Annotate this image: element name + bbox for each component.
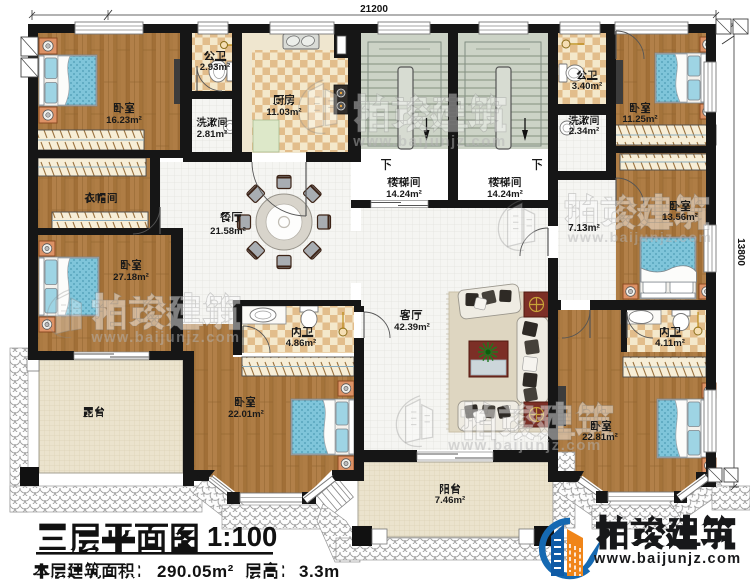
svg-text:www.baijunjz.com: www.baijunjz.com [447, 437, 601, 454]
svg-text:2.93m²: 2.93m² [200, 62, 230, 73]
svg-text:11.25m²: 11.25m² [622, 114, 657, 125]
svg-text:4.86m²: 4.86m² [286, 338, 316, 349]
svg-text:3.40m²: 3.40m² [572, 81, 602, 92]
svg-text:7.13m²: 7.13m² [568, 223, 600, 234]
svg-text:www.baijunjz.com: www.baijunjz.com [90, 330, 240, 346]
svg-text:4.11m²: 4.11m² [655, 338, 685, 349]
svg-text:22.01m²: 22.01m² [228, 409, 264, 420]
svg-text:www.baijunjz.com: www.baijunjz.com [352, 133, 506, 150]
svg-text:2.81m²: 2.81m² [197, 129, 227, 140]
svg-text:3.3m: 3.3m [299, 562, 340, 581]
svg-text:16.23m²: 16.23m² [106, 115, 142, 126]
svg-text:11.03m²: 11.03m² [266, 107, 301, 118]
svg-text:21.58m²: 21.58m² [210, 226, 246, 237]
svg-text:290.05m²: 290.05m² [157, 562, 234, 581]
svg-text:14.24m²: 14.24m² [487, 189, 523, 200]
svg-text:2.34m²: 2.34m² [569, 126, 599, 137]
svg-text:42.39m²: 42.39m² [394, 322, 430, 333]
svg-text:14.24m²: 14.24m² [386, 189, 422, 200]
svg-text:22.81m²: 22.81m² [582, 432, 618, 443]
svg-text:13.56m²: 13.56m² [662, 212, 698, 223]
svg-text:13800: 13800 [735, 238, 746, 266]
svg-text:27.18m²: 27.18m² [113, 272, 149, 283]
svg-text:21200: 21200 [360, 4, 388, 15]
svg-text:7.46m²: 7.46m² [435, 495, 465, 506]
svg-text:1:100: 1:100 [207, 521, 277, 552]
svg-text:www.baijunjz.com: www.baijunjz.com [593, 551, 742, 567]
